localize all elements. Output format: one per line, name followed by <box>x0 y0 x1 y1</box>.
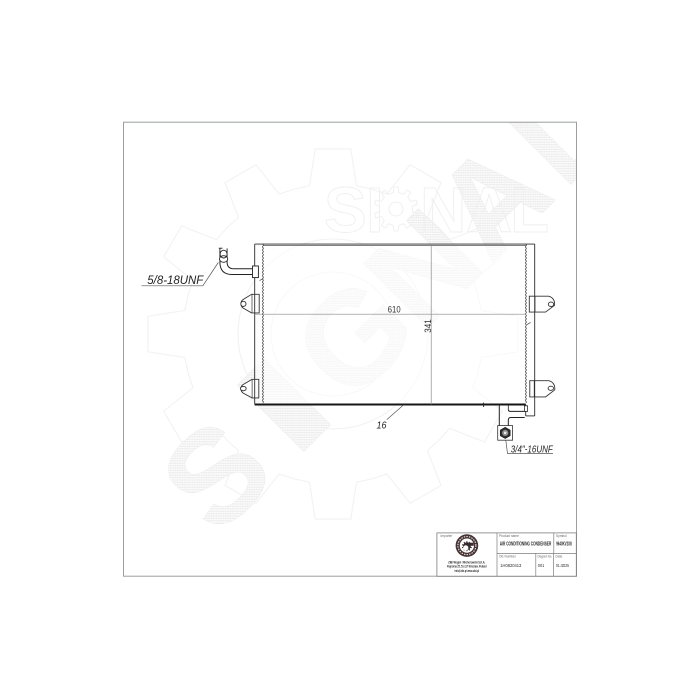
svg-text:610: 610 <box>388 304 401 315</box>
svg-text:OE Number: OE Number <box>499 555 517 559</box>
svg-text:Importer: Importer <box>441 534 454 538</box>
svg-text:001: 001 <box>538 563 545 568</box>
svg-text:16: 16 <box>377 420 387 431</box>
svg-text:AIR CONDITIONING CONDENSER: AIR CONDITIONING CONDENSER <box>500 541 552 547</box>
svg-text:ZIBI Wegiel i Michorowski S.K.: ZIBI Wegiel i Michorowski S.K.A. <box>448 560 485 564</box>
svg-text:Product name: Product name <box>499 534 519 538</box>
svg-text:01.I2025: 01.I2025 <box>556 563 569 568</box>
svg-text:L: L <box>510 174 549 246</box>
svg-text:N: N <box>420 174 466 246</box>
svg-text:Symbol: Symbol <box>556 534 567 538</box>
svg-text:9640KV2X8: 9640KV2X8 <box>556 541 572 547</box>
svg-text:1H0820413: 1H0820413 <box>500 563 521 568</box>
svg-text:5/8-18UNF: 5/8-18UNF <box>147 273 204 287</box>
svg-text:S: S <box>324 174 367 246</box>
svg-text:info@zibi.pl www.zibi.pl: info@zibi.pl www.zibi.pl <box>455 569 480 573</box>
svg-text:A: A <box>466 174 512 246</box>
svg-text:I: I <box>366 174 384 246</box>
svg-text:Date: Date <box>556 555 563 559</box>
svg-text:341: 341 <box>422 319 433 333</box>
svg-text:Diagram No.: Diagram No. <box>538 555 553 559</box>
